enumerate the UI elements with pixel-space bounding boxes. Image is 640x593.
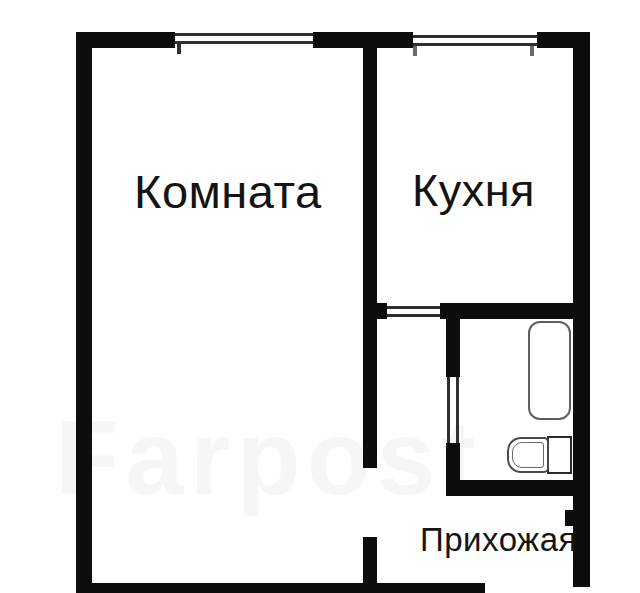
living-room-window-inner-line [175, 41, 313, 44]
toilet-tank [547, 436, 572, 474]
kitchen-window-jamb-tick-right [530, 46, 534, 56]
kitchen-window-jamb-tick-left [413, 46, 417, 56]
hallway-label: Прихожая [420, 522, 577, 558]
floor-plan: Farpost Комната Кухня Прихожая [0, 0, 640, 593]
bottom-wall [76, 583, 485, 593]
kitchen-window-inner-line [413, 43, 537, 46]
top-wall-middle [313, 32, 413, 48]
kitchen-door-line-bottom [387, 314, 440, 317]
bathroom-left-wall-upper [446, 318, 460, 377]
top-wall-left [92, 32, 175, 48]
living-room-window-outer-line [175, 33, 313, 36]
bathroom-door-line-left [447, 377, 450, 443]
bathroom-bottom-wall [446, 480, 590, 496]
left-wall [76, 32, 92, 593]
toilet-bowl-inner-line [512, 442, 544, 468]
kitchen-door-line-top [387, 306, 440, 309]
kitchen-window-outer-line [413, 35, 537, 38]
bathtub [528, 321, 571, 420]
room-partition-upper [363, 48, 377, 468]
room-partition-lower [363, 537, 377, 583]
kitchen-label: Кухня [412, 166, 535, 216]
top-wall-right [537, 32, 590, 48]
living-room-label: Комната [134, 166, 322, 218]
bathroom-door-line-right [456, 377, 459, 443]
kitchen-bottom-wall-stub [377, 303, 387, 319]
watermark: Farpost [55, 398, 482, 518]
kitchen-bottom-wall-right [440, 303, 590, 319]
bathroom-left-wall-lower [446, 443, 460, 480]
toilet-bowl [507, 437, 549, 473]
living-room-window-jamb-tick [177, 44, 181, 54]
